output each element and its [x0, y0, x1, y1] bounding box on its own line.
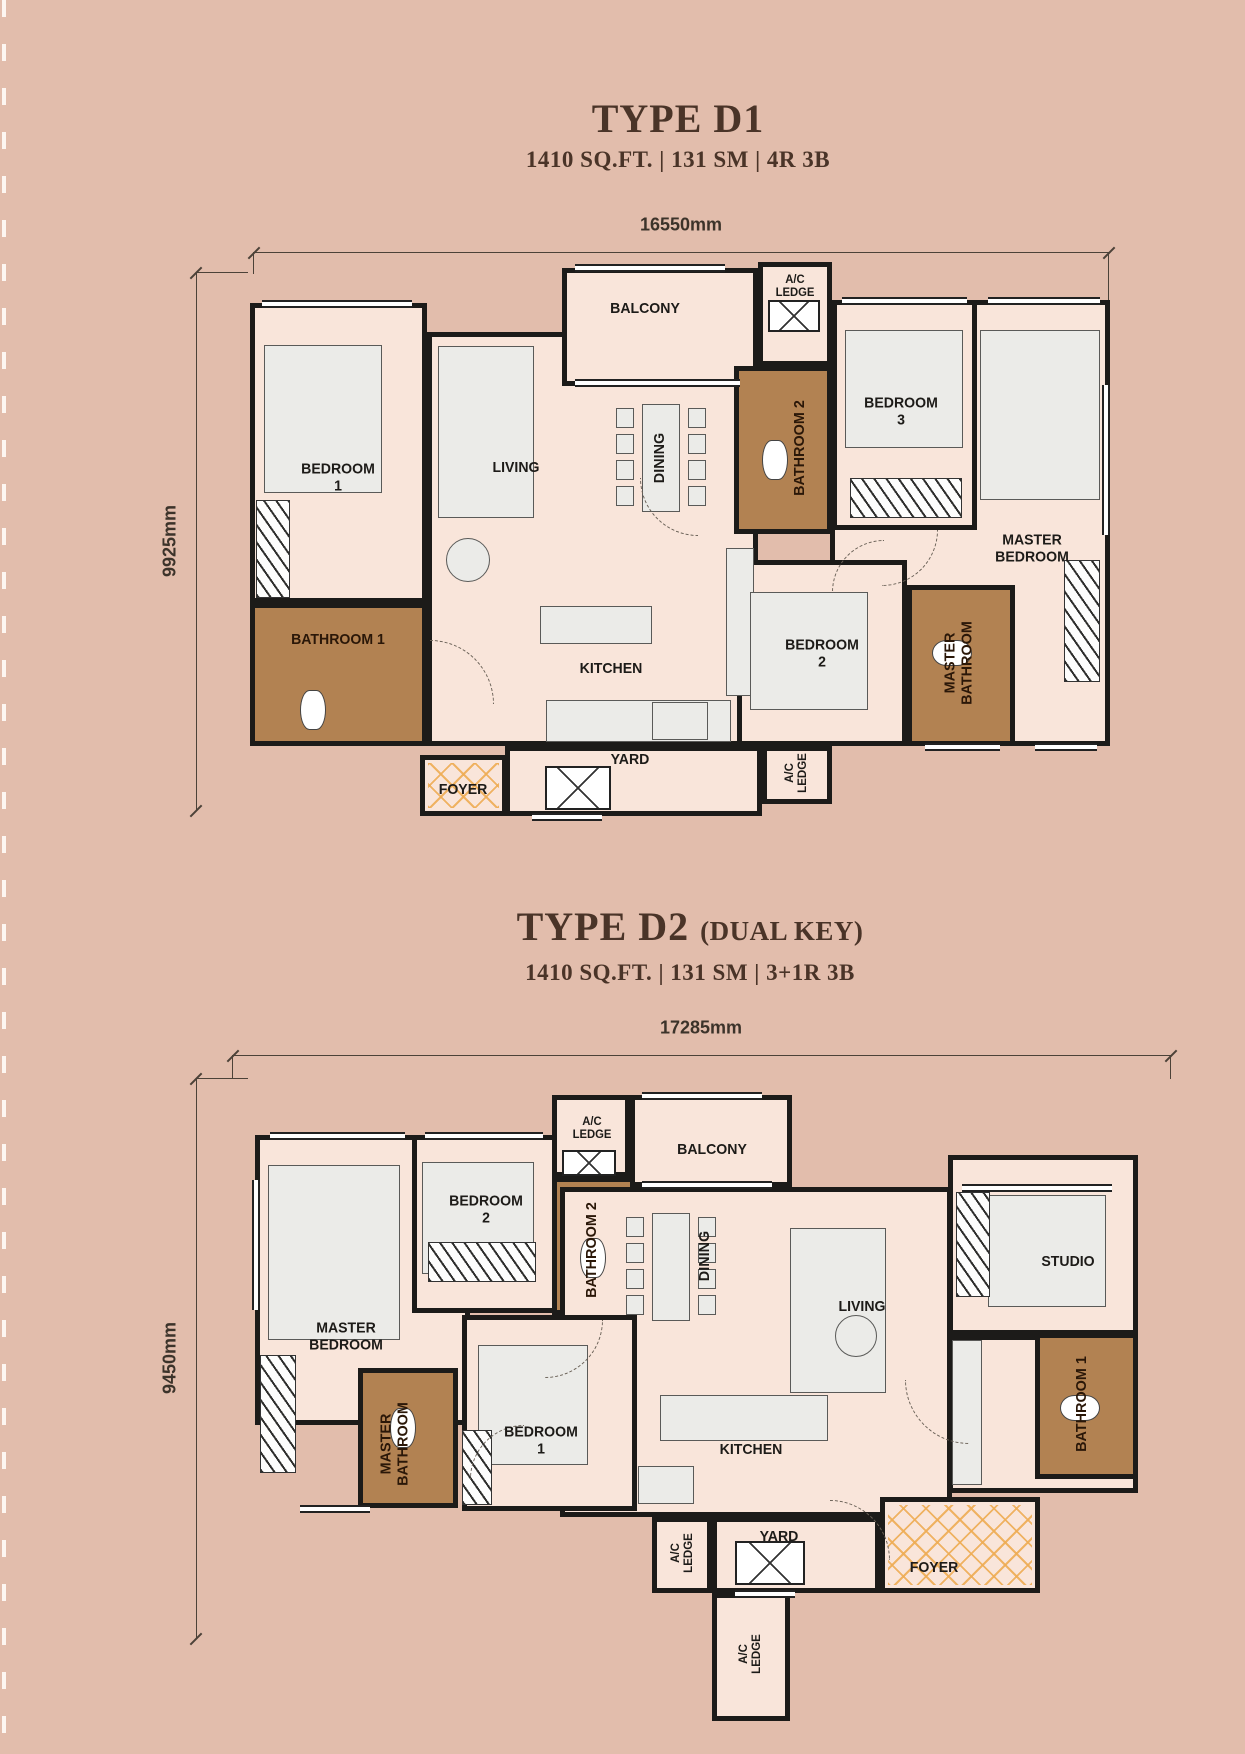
room-label-master-bathroom: MASTER BATHROOM	[943, 615, 976, 711]
furniture-wardrobe	[850, 478, 962, 518]
window	[925, 743, 1000, 751]
plan-d2-title-suffix: (DUAL KEY)	[700, 916, 863, 946]
room-label-living: LIVING	[838, 1299, 885, 1316]
d2-dim-tick	[1165, 1050, 1178, 1063]
floorplan-page: TYPE D1 1410 SQ.FT. | 131 SM | 4R 3B 165…	[0, 0, 1245, 1754]
room-label-bedroom-1: BEDROOM 1	[298, 462, 379, 495]
furniture-chair	[626, 1217, 644, 1237]
d1-room-balcony	[562, 268, 758, 386]
furniture-stove	[652, 702, 708, 740]
window	[300, 1505, 370, 1513]
furniture-wardrobe	[956, 1192, 990, 1297]
window	[842, 297, 967, 305]
d1-dim-height-label: 9925mm	[160, 505, 181, 577]
furniture-coffee-table	[835, 1315, 877, 1357]
room-label-foyer: FOYER	[910, 1560, 959, 1577]
window	[575, 379, 740, 387]
d1-dim-tick	[1103, 247, 1116, 260]
window	[988, 297, 1100, 305]
room-label-ac-ledge-side: A/C LEDGE	[783, 750, 809, 796]
d2-dim-ext	[232, 1055, 233, 1079]
window	[962, 1184, 1112, 1192]
d1-dim-width-label: 16550mm	[640, 215, 722, 236]
room-label-bathroom-2: BATHROOM 2	[584, 1202, 601, 1298]
room-label-bathroom-1: BATHROOM 1	[1074, 1356, 1091, 1452]
window	[1035, 743, 1097, 751]
furniture-sofa	[438, 346, 534, 518]
room-label-balcony: BALCONY	[610, 301, 680, 318]
washer	[735, 1541, 805, 1585]
furniture-chair	[688, 460, 706, 480]
room-label-foyer: FOYER	[439, 782, 488, 799]
d1-dim-line-top	[253, 252, 1109, 253]
window	[270, 1132, 405, 1140]
d2-dim-ext	[1170, 1055, 1171, 1079]
furniture-chair	[616, 460, 634, 480]
room-label-ac-ledge-bottom: A/C LEDGE	[737, 1631, 763, 1677]
d2-dim-line-left	[196, 1078, 197, 1638]
furniture-bed	[268, 1165, 400, 1340]
d2-dim-width-label: 17285mm	[660, 1018, 742, 1039]
d1-dim-tick	[248, 247, 261, 260]
room-label-bathroom-2: BATHROOM 2	[792, 400, 809, 496]
window	[735, 1590, 795, 1598]
d1-dim-ext	[253, 252, 254, 274]
room-label-ac-ledge-left: A/C LEDGE	[669, 1530, 695, 1576]
window	[1102, 385, 1110, 535]
furniture-chair	[616, 486, 634, 506]
room-label-ac-ledge: A/C LEDGE	[772, 273, 819, 299]
room-label-kitchen: KITCHEN	[720, 1442, 783, 1459]
furniture-chair	[688, 408, 706, 428]
furniture-wardrobe	[1064, 560, 1100, 682]
furniture-chair	[616, 408, 634, 428]
plan-d1-title: TYPE D1	[592, 95, 765, 142]
room-label-balcony: BALCONY	[677, 1142, 747, 1159]
room-label-yard: YARD	[611, 752, 650, 769]
furniture-stove	[638, 1466, 694, 1504]
d1-dim-ext	[196, 272, 248, 273]
plan-d1-specs: 1410 SQ.FT. | 131 SM | 4R 3B	[526, 147, 830, 173]
furniture-wardrobe	[428, 1242, 536, 1282]
furniture-chair	[626, 1269, 644, 1289]
room-label-dining: DINING	[652, 433, 669, 483]
toilet	[300, 690, 326, 730]
furniture-chair	[616, 434, 634, 454]
furniture-chair	[626, 1243, 644, 1263]
furniture-chair	[688, 434, 706, 454]
d2-dim-height-label: 9450mm	[160, 1322, 181, 1394]
plan-d2-title: TYPE D2 (DUAL KEY)	[517, 903, 864, 950]
plan-d2-specs: 1410 SQ.FT. | 131 SM | 3+1R 3B	[525, 960, 855, 986]
d2-dim-tick	[227, 1050, 240, 1063]
window	[642, 1181, 772, 1189]
room-label-master-bedroom: MASTER BEDROOM	[303, 1321, 389, 1354]
furniture-bed	[988, 1195, 1106, 1307]
washer	[545, 766, 611, 810]
window	[532, 813, 602, 821]
ac-unit	[768, 300, 820, 332]
room-label-living: LIVING	[492, 460, 539, 477]
window	[252, 1180, 260, 1310]
furniture-bed	[845, 330, 963, 448]
furniture-wardrobe	[260, 1355, 296, 1473]
room-label-bedroom-2: BEDROOM 2	[446, 1194, 527, 1227]
room-label-bedroom-3: BEDROOM 3	[861, 396, 942, 429]
page-edge-dashed-line	[2, 0, 6, 1754]
room-label-bathroom-1: BATHROOM 1	[263, 632, 413, 649]
toilet	[762, 440, 788, 480]
room-label-master-bedroom: MASTER BEDROOM	[989, 533, 1075, 566]
furniture-bed	[980, 330, 1100, 500]
room-label-dining: DINING	[697, 1231, 714, 1281]
room-label-bedroom-1: BEDROOM 1	[501, 1425, 582, 1458]
furniture-wardrobe	[256, 500, 290, 598]
furniture-kitchen-island	[660, 1395, 828, 1441]
d2-dim-line-top	[232, 1055, 1170, 1056]
plan-d2-title-main: TYPE D2	[517, 904, 690, 949]
d2-dim-ext	[196, 1078, 248, 1079]
furniture-kitchen-island	[540, 606, 652, 644]
window	[425, 1132, 543, 1140]
window	[262, 300, 412, 308]
window	[642, 1092, 762, 1100]
furniture-coffee-table	[446, 538, 490, 582]
room-label-studio: STUDIO	[1041, 1254, 1094, 1271]
window	[575, 264, 725, 272]
room-label-bedroom-2: BEDROOM 2	[782, 638, 863, 671]
ac-unit	[562, 1150, 616, 1176]
d1-room-bathroom-1	[250, 603, 427, 746]
room-label-master-bathroom: MASTER BATHROOM	[379, 1396, 412, 1492]
room-label-ac-ledge: A/C LEDGE	[569, 1115, 616, 1141]
furniture-dining-table	[652, 1213, 690, 1321]
furniture-chair	[626, 1295, 644, 1315]
room-label-kitchen: KITCHEN	[580, 661, 643, 678]
room-label-yard: YARD	[760, 1529, 799, 1546]
furniture-chair	[698, 1295, 716, 1315]
d1-dim-line-left	[196, 272, 197, 810]
